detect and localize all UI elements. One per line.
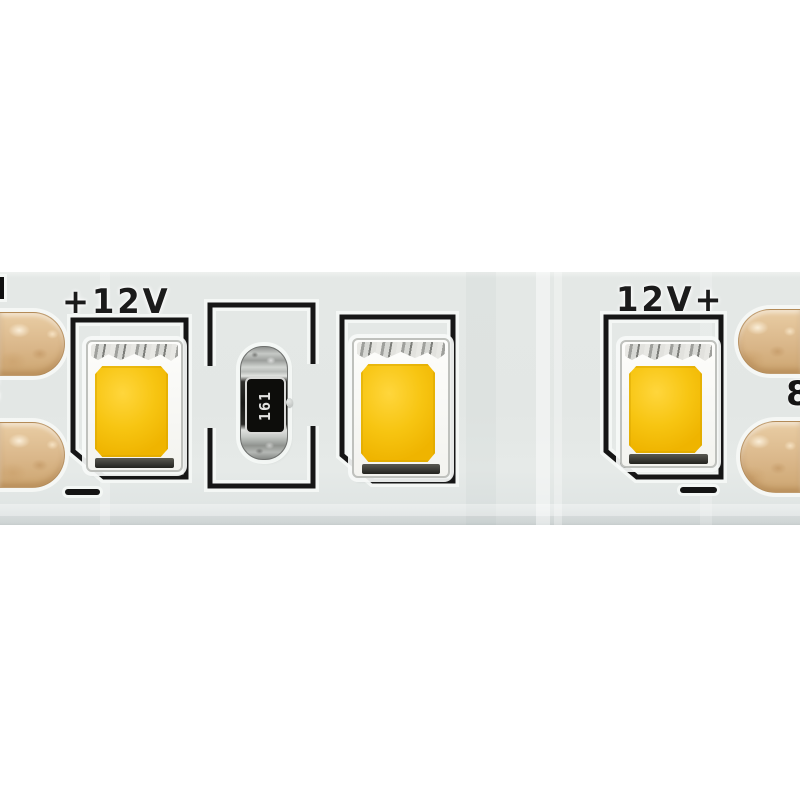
- solder-bump: [286, 398, 293, 407]
- led-electrode-shadow: [362, 464, 441, 474]
- resistor-marking-box: 161: [245, 377, 286, 434]
- cropped-silkscreen-mark-topleft: [0, 277, 4, 299]
- led-chip-middle: [352, 338, 450, 478]
- solder-pad-left-bottom: [0, 422, 65, 488]
- led-chip-left: [86, 340, 183, 472]
- led-strip-photo: 8 8 +12V 12V+ 161: [0, 0, 800, 800]
- cropped-glyph-char: 8: [0, 375, 2, 411]
- minus-polarity-mark-right: [680, 487, 717, 493]
- cropped-glyph-char: 8: [788, 377, 800, 411]
- led-electrode-shadow: [629, 454, 707, 464]
- led-phosphor-right: [629, 366, 702, 453]
- led-phosphor-middle: [361, 364, 435, 462]
- minus-polarity-mark-left: [65, 489, 100, 495]
- led-lens-reflection: [357, 342, 445, 359]
- led-electrode-shadow: [95, 458, 173, 468]
- solder-pad-left-top: [0, 312, 65, 376]
- voltage-label-left: +12V: [62, 285, 170, 319]
- resistor: 161: [240, 346, 288, 460]
- cropped-silkscreen-glyph-left: 8: [0, 375, 13, 415]
- resistor-marking-text: 161: [257, 390, 275, 420]
- led-lens-reflection: [625, 344, 712, 361]
- cropped-silkscreen-glyph-right: 8: [788, 377, 800, 413]
- solder-pad-right-top: [738, 309, 800, 374]
- led-lens-reflection: [91, 344, 178, 361]
- led-phosphor-left: [95, 366, 168, 457]
- led-chip-right: [620, 340, 717, 468]
